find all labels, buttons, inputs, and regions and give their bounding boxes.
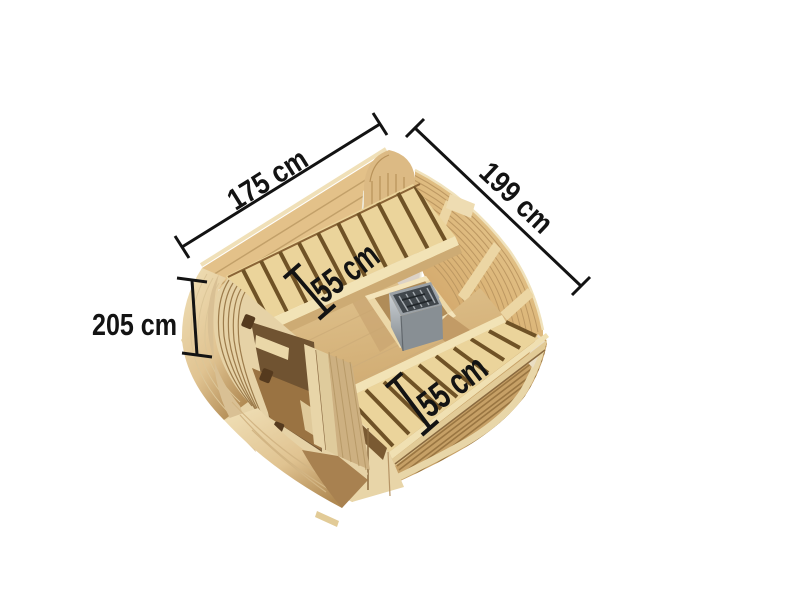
svg-text:205 cm: 205 cm xyxy=(92,307,177,342)
